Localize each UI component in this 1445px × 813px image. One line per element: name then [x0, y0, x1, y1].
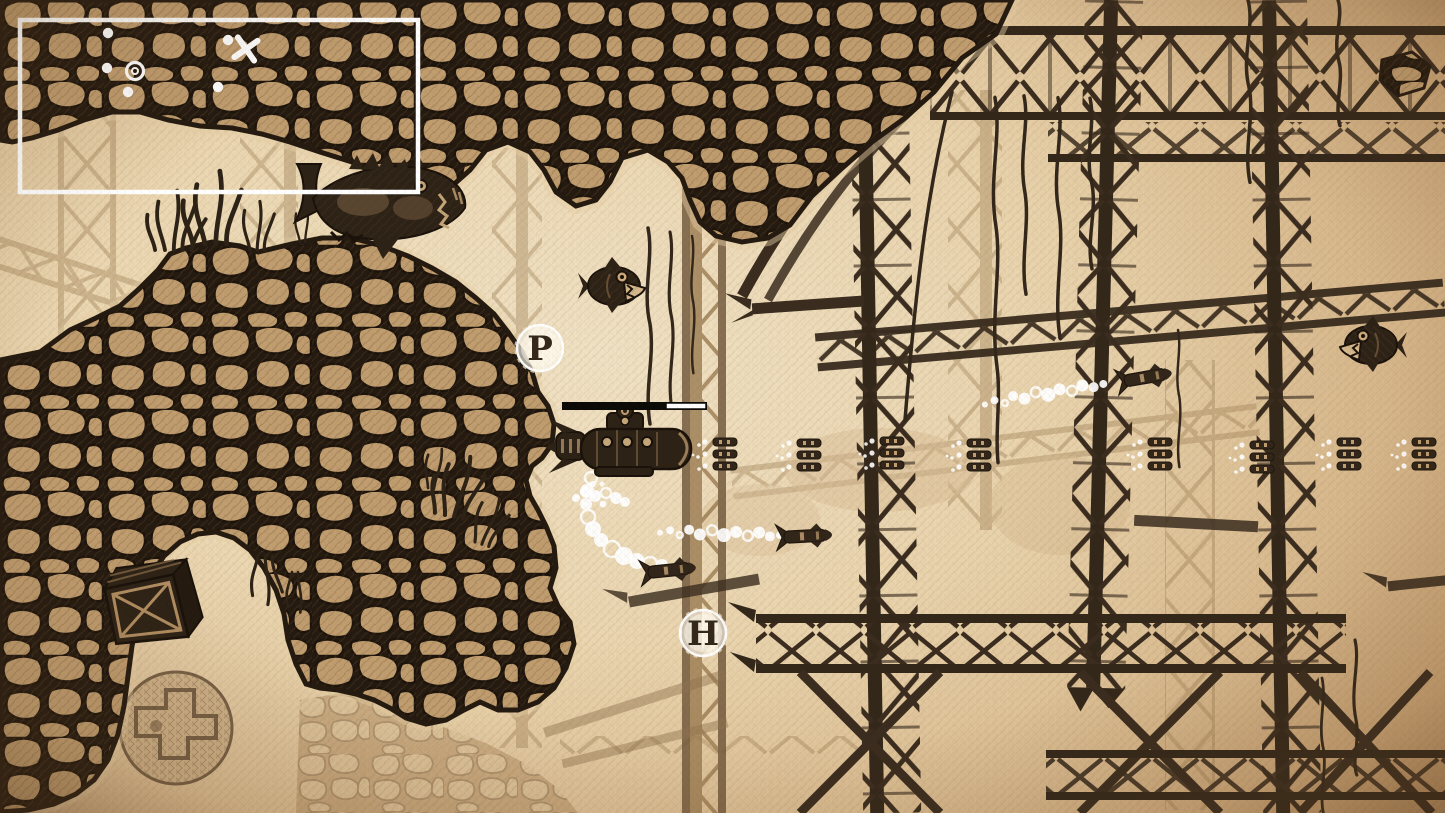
vignette-overlay [0, 0, 1445, 813]
game-viewport[interactable]: P H [0, 0, 1445, 813]
game-scene: P H [0, 0, 1445, 813]
